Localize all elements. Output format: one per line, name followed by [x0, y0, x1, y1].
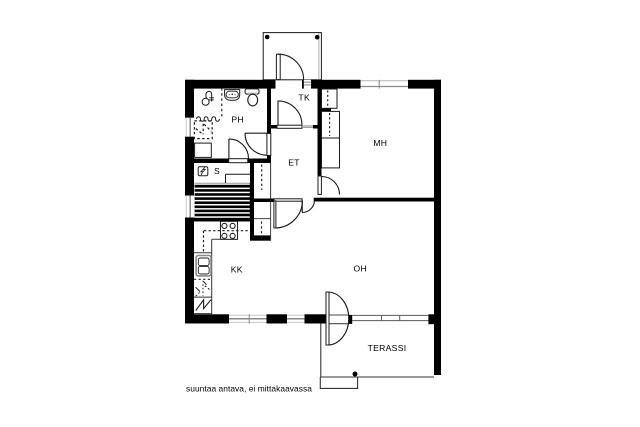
svg-text:TK: TK [298, 93, 310, 103]
svg-text:OH: OH [354, 263, 368, 273]
svg-text:TERASSI: TERASSI [368, 343, 407, 353]
svg-text:KK: KK [231, 264, 243, 274]
svg-text:PH: PH [231, 114, 244, 124]
svg-text:S: S [214, 166, 220, 176]
svg-text:ET: ET [288, 157, 300, 167]
svg-text:MH: MH [373, 138, 387, 148]
svg-text:suuntaa antava, ei mittakaavas: suuntaa antava, ei mittakaavassa [186, 383, 312, 393]
